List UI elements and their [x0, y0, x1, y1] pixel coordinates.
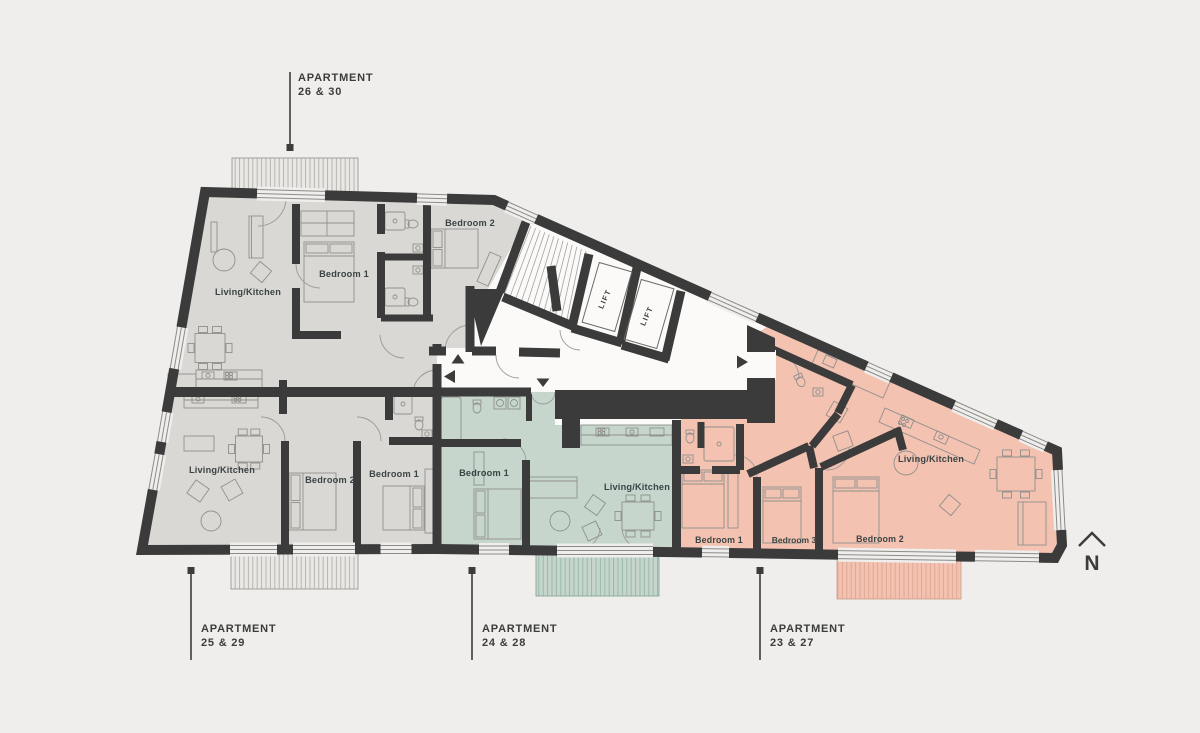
svg-text:APARTMENT: APARTMENT	[201, 623, 276, 635]
svg-text:Living/Kitchen: Living/Kitchen	[898, 454, 964, 464]
svg-text:Bedroom 1: Bedroom 1	[369, 469, 419, 479]
svg-text:23 & 27: 23 & 27	[770, 637, 814, 649]
svg-text:APARTMENT: APARTMENT	[298, 72, 373, 84]
svg-text:APARTMENT: APARTMENT	[770, 623, 845, 635]
svg-text:Bedroom 2: Bedroom 2	[445, 218, 495, 228]
svg-text:Bedroom 2: Bedroom 2	[856, 534, 904, 544]
svg-text:N: N	[1084, 552, 1099, 575]
svg-text:Living/Kitchen: Living/Kitchen	[604, 482, 670, 492]
svg-text:25 & 29: 25 & 29	[201, 637, 245, 649]
svg-text:Living/Kitchen: Living/Kitchen	[189, 465, 255, 475]
svg-text:24 & 28: 24 & 28	[482, 637, 526, 649]
svg-text:Bedroom 1: Bedroom 1	[319, 269, 369, 279]
svg-text:26 & 30: 26 & 30	[298, 86, 342, 98]
svg-text:Bedroom 1: Bedroom 1	[459, 468, 509, 478]
svg-text:Bedroom 1: Bedroom 1	[695, 535, 743, 545]
svg-text:Living/Kitchen: Living/Kitchen	[215, 287, 281, 297]
svg-text:Bedroom 3: Bedroom 3	[772, 535, 817, 545]
svg-text:APARTMENT: APARTMENT	[482, 623, 557, 635]
svg-text:Bedroom 2: Bedroom 2	[305, 475, 355, 485]
